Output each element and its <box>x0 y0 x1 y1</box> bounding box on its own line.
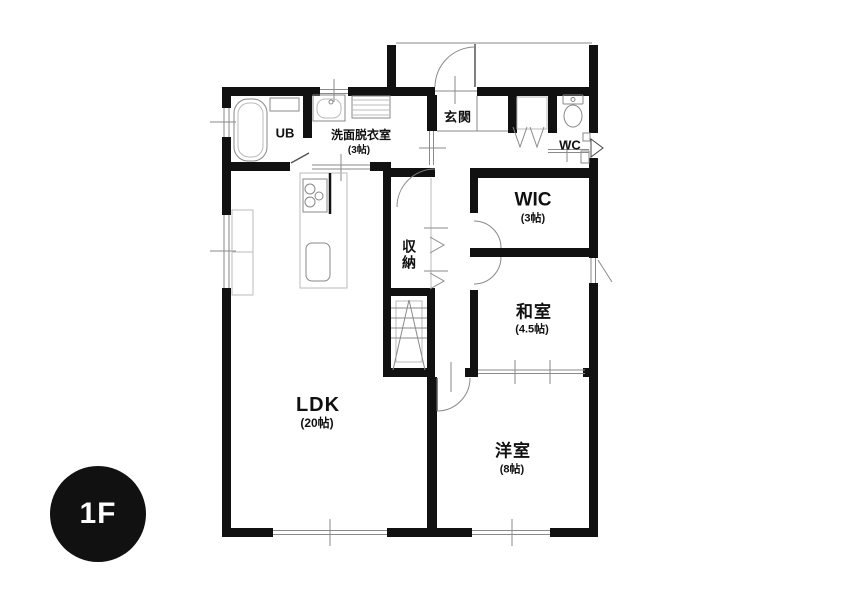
kitchen-counter <box>300 173 347 288</box>
tv-board-icon <box>232 210 253 295</box>
room-label-storage: 収納 <box>402 239 416 271</box>
room-label-western-room: 洋室 <box>495 443 531 460</box>
room-divider-sliding-door-icon <box>478 370 585 374</box>
room-label-ldk: LDK <box>296 395 340 415</box>
toilet-icon <box>563 95 583 127</box>
floor-badge: 1F <box>50 466 146 562</box>
room-label-wic: WIC <box>515 191 552 210</box>
window-icons <box>224 90 612 535</box>
room-label-unit-bath: UB <box>276 127 295 140</box>
room-label-japanese-room: 和室 <box>516 304 552 321</box>
wic-door-arc-icon <box>474 221 501 248</box>
bath-door-icon <box>291 153 309 163</box>
room-label-wc: WC <box>559 139 581 152</box>
room-label-entrance: 玄関 <box>444 111 472 124</box>
room-label-washroom: 洗面脱衣室 <box>331 129 391 141</box>
room-size-japanese-room: (4.5帖) <box>515 325 549 336</box>
room-size-washroom: (3帖) <box>348 146 370 156</box>
storage-bifold-icon <box>430 237 444 289</box>
washbasin-icon <box>313 95 345 121</box>
shoe-closet-bifold-icon <box>513 127 544 147</box>
sink-icon <box>306 243 330 281</box>
japanese-room-door-arc-icon <box>474 257 501 284</box>
room-size-wic: (3帖) <box>521 214 545 225</box>
western-room-door-arc-icon <box>437 378 470 411</box>
room-size-western-room: (8帖) <box>500 465 524 476</box>
floor-plan-page: LDK (20帖) 洋室 (8帖) 和室 (4.5帖) WIC (3帖) 洗面脱… <box>0 0 842 595</box>
stairs-icon <box>391 300 427 370</box>
wc-window-icon <box>591 139 603 157</box>
laundry-shelf-icon <box>352 96 390 118</box>
room-size-ldk: (20帖) <box>300 417 333 429</box>
